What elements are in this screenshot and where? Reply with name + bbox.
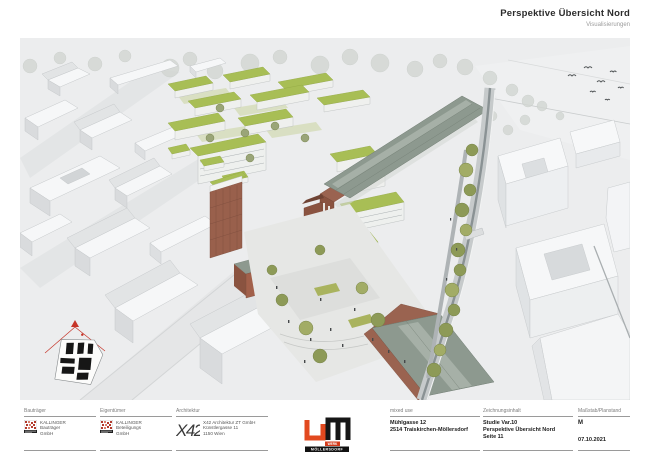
svg-text:X42: X42 [176,421,200,440]
project-label: mixed use [390,408,480,417]
rendering-viewport [20,38,630,400]
developer-line3: GmbH [40,431,66,437]
developer-label: Bauträger [24,408,96,417]
page-title: Perspektive Übersicht Nord [500,8,630,19]
plan-sheet: Perspektive Übersicht Nord Visualisierun… [0,0,650,460]
x42-logo-icon: X42 [176,420,200,440]
titleblock-developer: Bauträger KALLINGER Bauträger GmbH [24,408,96,451]
owner-line3: GmbH [116,431,142,437]
svg-text:WERK: WERK [328,442,338,446]
titleblock-drawing: Zeichnungsinhalt Studie Var.10 Perspekti… [483,408,573,451]
page-subtitle: Visualisierungen [500,22,630,28]
titleblock-owner: Eigentümer KALLINGER Beteiligungs GmbH [100,408,172,451]
site-rendering [20,38,630,400]
titleblock-scale: Maßstab/Planstand M 07.10.2021 [578,408,630,451]
titleblock-architect: Architektur X42 X42 Architektur ZT GmbH … [176,408,268,451]
kallinger-logo-icon [100,420,113,433]
owner-line2: Beteiligungs [116,425,142,431]
architect-label: Architektur [176,408,268,417]
drawing-study: Studie Var.10 [483,420,573,427]
scale-label: Maßstab/Planstand [578,408,630,417]
titleblock-project: mixed use Mühlgasse 12 2514 Traiskirchen… [390,408,480,451]
scale-value: M [578,420,630,426]
svg-text:MÖLLERSDORF: MÖLLERSDORF [311,447,344,452]
project-address: Mühlgasse 12 [390,420,480,427]
werk-moellersdorf-logo: WERK MÖLLERSDORF [303,412,353,454]
architect-city: 1150 Wien [203,431,256,437]
sheet-header: Perspektive Übersicht Nord Visualisierun… [500,8,630,28]
kallinger-logo-icon [24,420,37,433]
drawing-title: Perspektive Übersicht Nord [483,427,573,434]
drawing-label: Zeichnungsinhalt [483,408,573,417]
owner-label: Eigentümer [100,408,172,417]
project-city: 2514 Traiskirchen-Möllersdorf [390,427,480,434]
werk-moellersdorf-logo-icon: WERK MÖLLERSDORF [303,412,353,454]
drawing-page: Seite 11 [483,434,573,441]
plan-date: 07.10.2021 [578,437,630,443]
